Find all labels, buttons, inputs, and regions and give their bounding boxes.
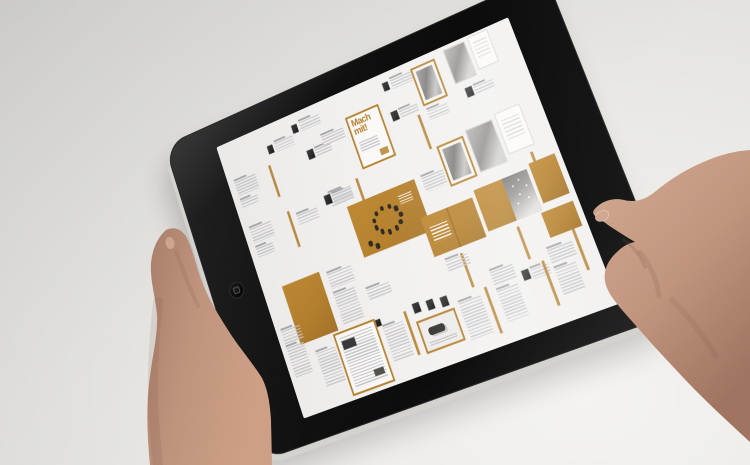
- text-block: [390, 71, 414, 89]
- text-block: [547, 241, 577, 264]
- text-block: [286, 342, 313, 378]
- connector-line: [516, 226, 531, 259]
- text-block: [327, 265, 356, 289]
- text-block: [490, 264, 517, 286]
- text-block: [297, 207, 321, 226]
- image-thumbnail: [412, 302, 422, 314]
- text-block: [241, 195, 260, 210]
- text-block: [256, 242, 275, 258]
- page-layout-overview: Mach mit!: [216, 17, 619, 418]
- text-block: [250, 221, 276, 244]
- orange-spread-thumbnail[interactable]: [421, 197, 487, 257]
- image-thumbnail: [382, 81, 390, 91]
- text-block: [366, 281, 392, 301]
- text-block: [321, 127, 346, 147]
- home-button[interactable]: [227, 280, 246, 301]
- home-button-icon: [233, 286, 241, 295]
- touchscreen[interactable]: Mach mit!: [216, 17, 619, 418]
- text-block: [299, 114, 322, 131]
- left-thumb-nail: [164, 236, 175, 250]
- cover-page-thumbnail[interactable]: Mach mit!: [345, 104, 396, 170]
- photo-background: Mach mit!: [0, 0, 750, 465]
- orange-page-thumbnail[interactable]: [541, 201, 582, 238]
- connector-line: [268, 165, 281, 197]
- image-thumbnail: [426, 299, 436, 311]
- text-block: [234, 173, 259, 196]
- text-block: [421, 169, 448, 192]
- car-page-thumbnail[interactable]: [416, 307, 466, 354]
- text-block: [427, 103, 450, 120]
- image-thumbnail: [291, 124, 299, 134]
- image-thumbnail: [439, 295, 449, 307]
- cover-title: Mach mit!: [350, 113, 375, 137]
- text-block: [474, 79, 496, 95]
- text-block: [399, 103, 419, 118]
- silver-spread-thumbnail[interactable]: [473, 169, 542, 232]
- tablet-device: Mach mit!: [164, 0, 680, 461]
- text-block: [497, 283, 529, 322]
- text-block: [554, 261, 586, 296]
- text-block: [274, 135, 295, 152]
- text-block: [334, 287, 365, 326]
- framed-photo-thumbnail[interactable]: [410, 58, 448, 106]
- image-thumbnail: [267, 144, 275, 154]
